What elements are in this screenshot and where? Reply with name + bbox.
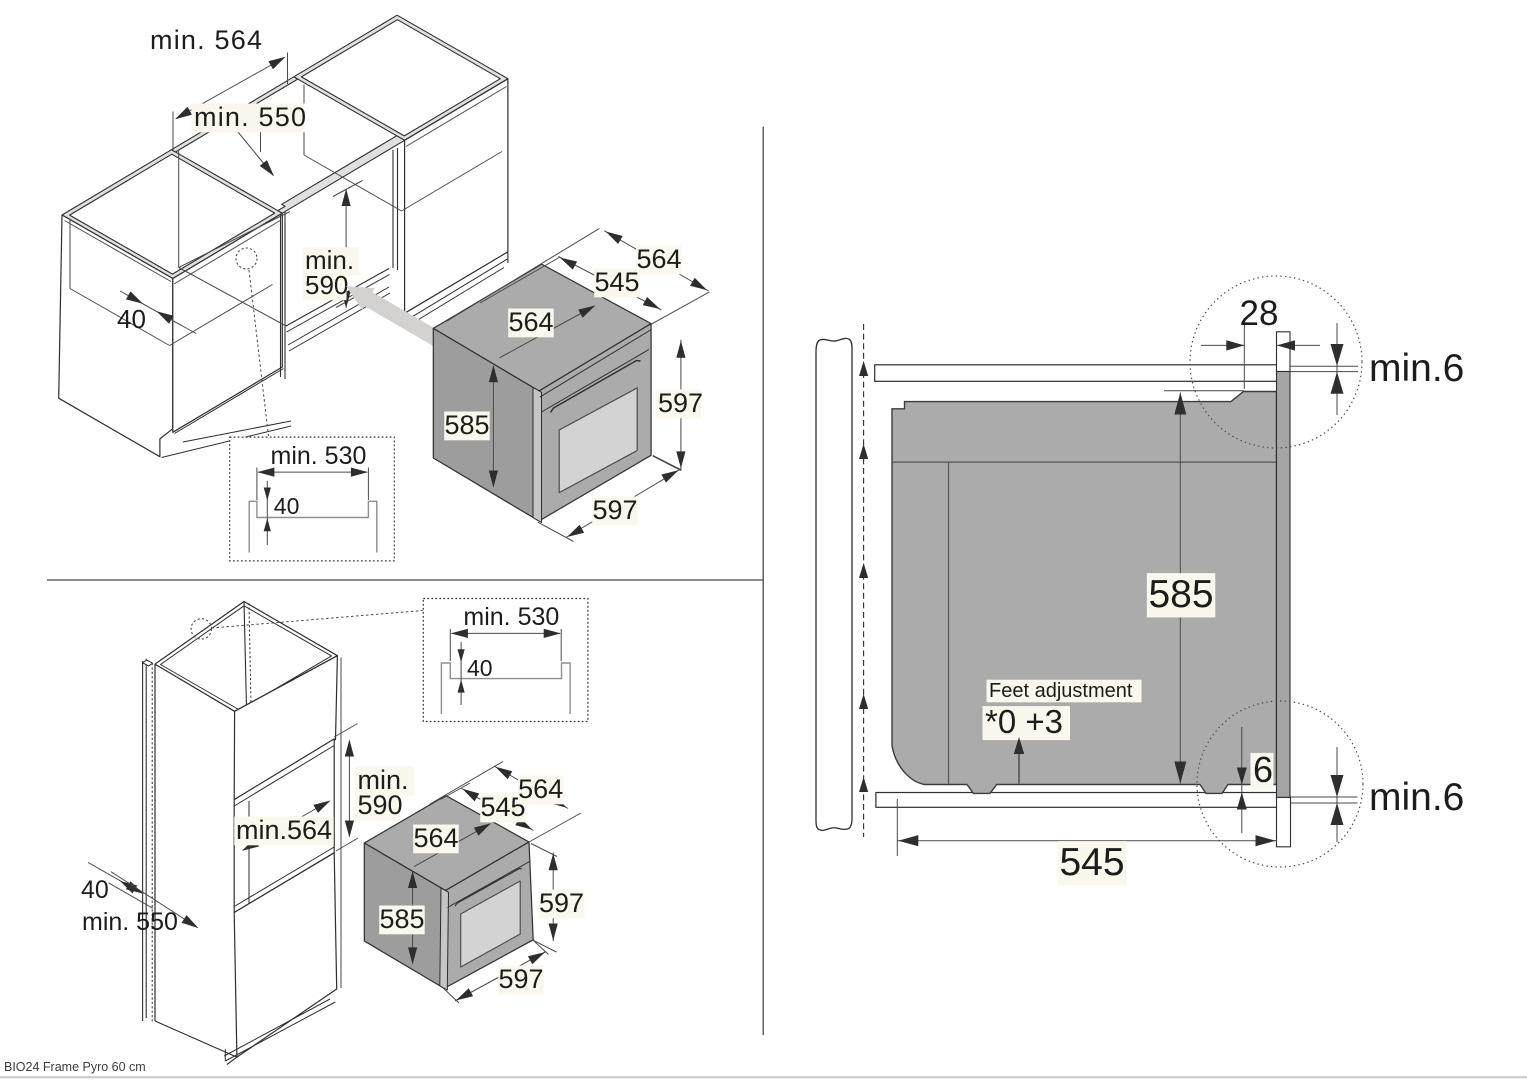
svg-text:min. 530: min. 530	[271, 442, 367, 470]
svg-text:40: 40	[81, 876, 109, 904]
svg-text:597: 597	[592, 495, 637, 525]
svg-text:BIO24 Frame Pyro 60 cm: BIO24 Frame Pyro 60 cm	[4, 1060, 146, 1074]
svg-text:28: 28	[1240, 294, 1279, 333]
svg-text:min. 564: min. 564	[150, 25, 263, 55]
svg-text:545: 545	[594, 267, 639, 297]
svg-text:40: 40	[274, 493, 300, 519]
svg-text:585: 585	[379, 904, 424, 934]
svg-text:564: 564	[518, 774, 563, 804]
svg-text:min. 530: min. 530	[463, 603, 559, 631]
svg-text:*0 +3: *0 +3	[985, 703, 1063, 740]
svg-text:6: 6	[1253, 749, 1273, 790]
svg-text:min. 550: min. 550	[82, 908, 178, 936]
svg-text:min. 550: min. 550	[194, 102, 307, 132]
svg-text:597: 597	[539, 888, 584, 918]
svg-text:545: 545	[1059, 841, 1124, 884]
svg-text:597: 597	[498, 964, 543, 994]
svg-text:590: 590	[358, 790, 403, 820]
svg-text:564: 564	[508, 307, 553, 337]
svg-text:597: 597	[658, 388, 703, 418]
svg-text:Feet adjustment: Feet adjustment	[989, 680, 1133, 702]
svg-text:40: 40	[117, 304, 146, 334]
svg-text:564: 564	[413, 823, 458, 853]
svg-text:min.6: min.6	[1369, 776, 1464, 819]
svg-text:min.564: min.564	[236, 815, 332, 845]
svg-text:585: 585	[1148, 573, 1213, 616]
svg-text:min.6: min.6	[1369, 347, 1464, 390]
svg-text:564: 564	[636, 244, 681, 274]
svg-text:585: 585	[444, 410, 489, 440]
svg-text:590: 590	[305, 270, 348, 300]
svg-text:40: 40	[467, 655, 493, 681]
